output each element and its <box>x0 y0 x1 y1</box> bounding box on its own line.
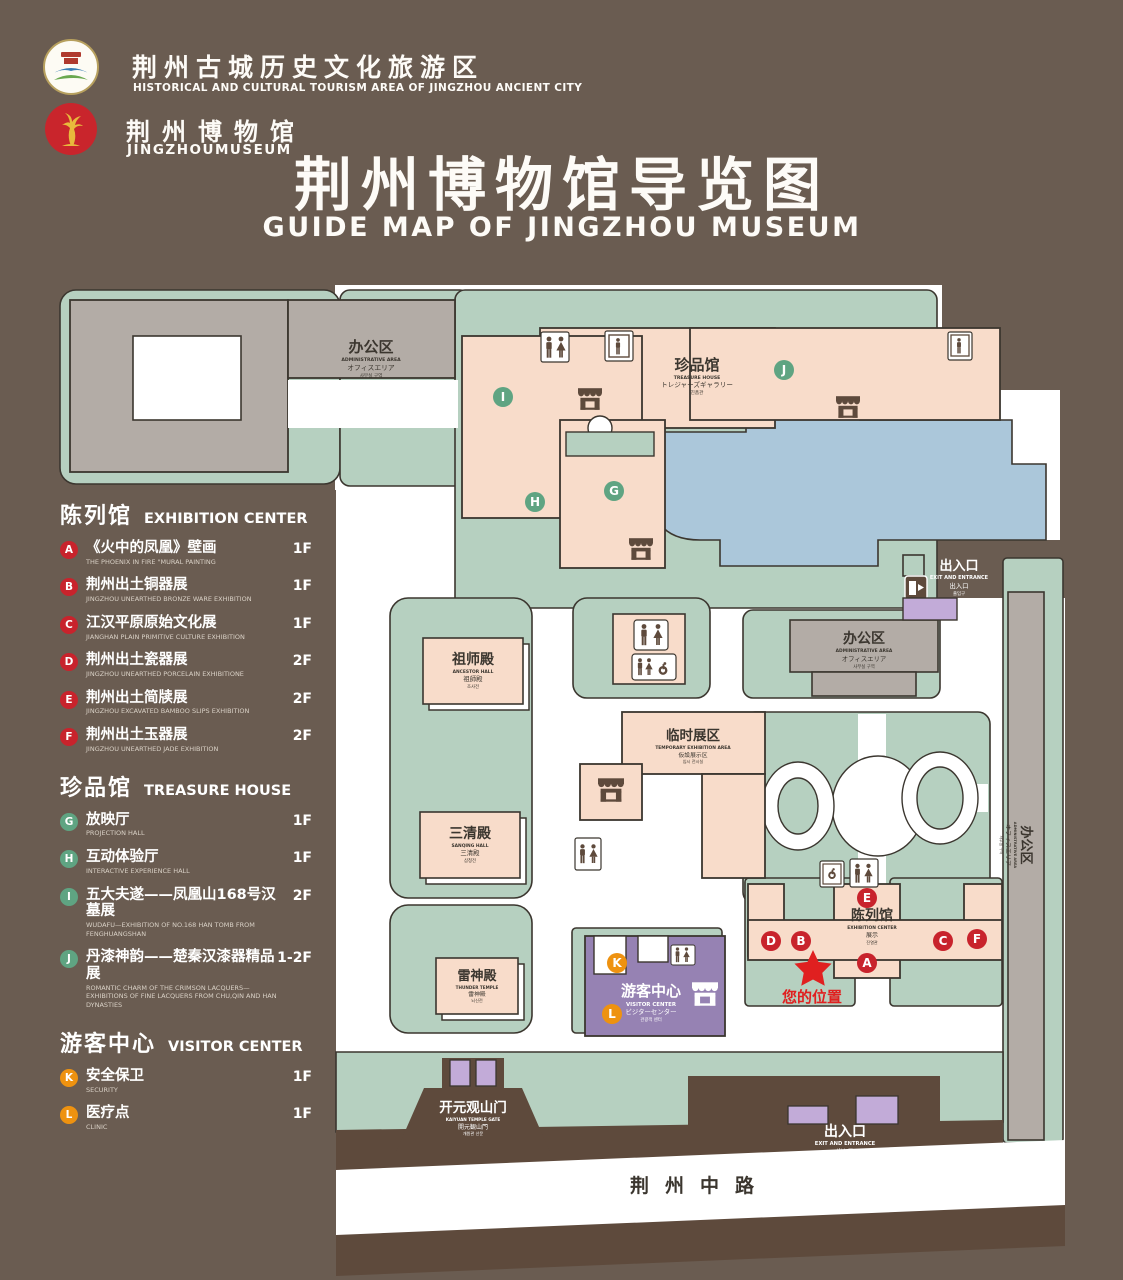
marker-K: K <box>607 953 627 973</box>
sanqing-hall: 三清殿 SANQING HALL 三清殿 삼청전 <box>420 812 526 884</box>
marker-badge: A <box>60 541 78 559</box>
marker-A: A <box>857 953 877 973</box>
section-treasure-house: 珍品馆 TREASURE HOUSE <box>60 770 312 802</box>
svg-text:출입구: 출입구 <box>839 1154 851 1161</box>
svg-text:ビジターセンター: ビジターセンター <box>626 1007 677 1016</box>
item-en: ROMANTIC CHARM OF THE CRIMSON LACQUERS—E… <box>86 984 278 1010</box>
elevator-icon <box>605 331 633 361</box>
svg-text:EXIT AND ENTRANCE: EXIT AND ENTRANCE <box>930 575 989 581</box>
item-zh: 五大夫遂——凤凰山168号汉墓展 <box>86 887 278 920</box>
svg-text:E: E <box>863 891 871 905</box>
svg-text:개원관 산문: 개원관 산문 <box>463 1130 484 1137</box>
svg-text:삼청전: 삼청전 <box>464 857 476 864</box>
svg-text:사무실 구역: 사무실 구역 <box>999 836 1004 855</box>
restroom-icon <box>671 945 695 965</box>
svg-text:トレジャーズギャラリー: トレジャーズギャラリー <box>661 380 733 389</box>
item-zh: 《火中的凤凰》壁画 <box>86 540 217 557</box>
svg-text:KAIYUAN TEMPLE GATE: KAIYUAN TEMPLE GATE <box>446 1117 501 1122</box>
svg-text:临时展区: 临时展区 <box>666 727 720 744</box>
restroom-icon <box>850 859 878 887</box>
item-zh: 荆州出土玉器展 <box>86 727 218 744</box>
marker-badge: I <box>60 888 78 906</box>
svg-text:ADMINISTRATIVE AREA: ADMINISTRATIVE AREA <box>836 648 893 654</box>
svg-text:EXIT AND ENTRANCE: EXIT AND ENTRANCE <box>815 1141 876 1147</box>
marker-H: H <box>525 492 545 512</box>
item-en: JINGZHOU UNEARTHED PORCELAIN EXHIBITIONE <box>86 670 244 679</box>
item-floor: 1F <box>293 578 312 594</box>
svg-text:出入口: 出入口 <box>939 558 978 574</box>
item-zh: 放映厅 <box>86 812 145 829</box>
section-exhibition-center: 陈列馆 EXHIBITION CENTER <box>60 498 312 530</box>
svg-text:A: A <box>862 956 872 970</box>
svg-text:EXHIBITION CENTER: EXHIBITION CENTER <box>847 925 897 931</box>
marker-L: L <box>602 1004 622 1024</box>
tourism-area-name-en: HISTORICAL AND CULTURAL TOURISM AREA OF … <box>133 82 582 94</box>
item-zh: 医疗点 <box>86 1105 130 1122</box>
svg-text:THUNDER TEMPLE: THUNDER TEMPLE <box>456 985 499 990</box>
road-name: 荆州中路 <box>630 1174 770 1197</box>
svg-text:出入口: 出入口 <box>949 581 968 590</box>
svg-text:雷神殿: 雷神殿 <box>457 968 497 984</box>
marker-badge: C <box>60 616 78 634</box>
item-floor: 1F <box>293 850 312 866</box>
guide-map-poster: 办公区 ADMINISTRATIVE AREA オフィスエリア 사무실 구역 珍… <box>0 0 1123 1280</box>
legend-item-K: K 安全保卫 SECURITY 1F <box>60 1068 312 1094</box>
item-floor: 1F <box>293 616 312 632</box>
svg-text:ADMINISTRATIVE AREA: ADMINISTRATIVE AREA <box>1013 822 1017 869</box>
tourism-area-logo <box>42 38 100 100</box>
item-zh: 荆州出土铜器展 <box>86 577 252 594</box>
svg-text:游客中心: 游客中心 <box>621 982 681 1000</box>
restroom-icon <box>541 332 569 362</box>
marker-badge: J <box>60 950 78 968</box>
exit-entrance-icon <box>905 576 927 600</box>
svg-text:진품관: 진품관 <box>691 389 704 396</box>
svg-text:J: J <box>781 363 786 377</box>
item-zh: 江汉平原原始文化展 <box>86 615 245 632</box>
elevator-icon <box>948 332 972 360</box>
museum-logo <box>44 102 98 160</box>
item-floor: 1F <box>293 1069 312 1085</box>
museum-name-en: JINGZHOUMUSEUM <box>127 142 292 158</box>
svg-text:I: I <box>501 390 505 404</box>
svg-text:임시 전시실: 임시 전시실 <box>683 758 704 764</box>
legend-item-A: A 《火中的凤凰》壁画 THE PHOENIX IN FIRE "MURAL P… <box>60 540 312 566</box>
svg-text:출입구: 출입구 <box>953 590 965 597</box>
svg-text:出入口: 出入口 <box>824 1123 866 1140</box>
svg-text:H: H <box>530 495 540 509</box>
svg-text:三清殿: 三清殿 <box>460 848 480 857</box>
office-building-mid: 办公区 ADMINISTRATIVE AREA オフィスエリア 사무실 구역 <box>790 620 938 696</box>
legend-item-B: B 荆州出土铜器展 JINGZHOU UNEARTHED BRONZE WARE… <box>60 577 312 603</box>
item-floor: 2F <box>293 888 312 904</box>
section-title-en: EXHIBITION CENTER <box>144 511 308 527</box>
svg-text:祖師殿: 祖師殿 <box>463 674 483 683</box>
item-floor: 2F <box>293 728 312 744</box>
item-en: CLINIC <box>86 1123 130 1132</box>
page-title: 荆州博物馆导览图 <box>294 138 830 222</box>
svg-text:办公区: 办公区 <box>348 338 393 356</box>
svg-text:F: F <box>973 932 981 946</box>
legend-item-F: F 荆州出土玉器展 JINGZHOU UNEARTHED JADE EXHIBI… <box>60 727 312 753</box>
item-floor: 1F <box>293 1106 312 1122</box>
item-en: JINGZHOU EXCAVATED BAMBOO SLIPS EXHIBITI… <box>86 707 249 716</box>
item-zh: 安全保卫 <box>86 1068 144 1085</box>
svg-text:办公区: 办公区 <box>1018 825 1034 864</box>
legend-item-G: G 放映厅 PROJECTION HALL 1F <box>60 812 312 838</box>
restroom-block-north <box>613 614 685 684</box>
svg-text:G: G <box>609 484 619 498</box>
section-title-en: TREASURE HOUSE <box>144 783 291 799</box>
legend-item-J: J 丹漆神韵——楚秦汉漆器精品展 ROMANTIC CHARM OF THE C… <box>60 949 312 1010</box>
marker-F: F <box>967 929 987 949</box>
section-title-zh: 游客中心 <box>60 1026 156 1058</box>
svg-text:展示: 展示 <box>866 932 878 939</box>
svg-text:开元观山门: 开元观山门 <box>439 1099 507 1116</box>
legend-item-D: D 荆州出土瓷器展 JINGZHOU UNEARTHED PORCELAIN E… <box>60 652 312 678</box>
svg-text:사무실 구역: 사무실 구역 <box>360 372 383 379</box>
item-en: WUDAFU—EXHIBITION OF NO.168 HAN TOMB FRO… <box>86 921 278 939</box>
svg-text:雷神殿: 雷神殿 <box>468 990 486 998</box>
legend-item-L: L 医疗点 CLINIC 1F <box>60 1105 312 1131</box>
marker-E: E <box>857 888 877 908</box>
svg-text:TEMPORARY EXHIBITION AREA: TEMPORARY EXHIBITION AREA <box>655 745 731 751</box>
accessible-elevator-icon <box>820 861 844 887</box>
svg-text:出入口: 出入口 <box>837 1147 854 1155</box>
legend-item-E: E 荆州出土简牍展 JINGZHOU EXCAVATED BAMBOO SLIP… <box>60 690 312 716</box>
item-en: JINGZHOU UNEARTHED JADE EXHIBITION <box>86 745 218 754</box>
svg-text:ADMINISTRATIVE AREA: ADMINISTRATIVE AREA <box>341 357 401 363</box>
item-floor: 1F <box>293 541 312 557</box>
marker-badge: D <box>60 653 78 671</box>
svg-text:L: L <box>608 1007 616 1021</box>
legend-item-H: H 互动体验厅 INTERACTIVE EXPERIENCE HALL 1F <box>60 849 312 875</box>
family-restroom-icon <box>632 654 676 680</box>
svg-text:三清殿: 三清殿 <box>449 825 492 842</box>
item-zh: 互动体验厅 <box>86 849 190 866</box>
item-en: THE PHOENIX IN FIRE "MURAL PAINTING <box>86 558 217 567</box>
legend-item-I: I 五大夫遂——凤凰山168号汉墓展 WUDAFU—EXHIBITION OF … <box>60 887 312 939</box>
svg-text:D: D <box>766 934 776 948</box>
svg-text:관광객 센터: 관광객 센터 <box>640 1016 662 1023</box>
svg-text:陈列馆: 陈列馆 <box>851 907 893 924</box>
marker-badge: E <box>60 691 78 709</box>
marker-D: D <box>761 931 781 951</box>
section-visitor-center: 游客中心 VISITOR CENTER <box>60 1026 312 1058</box>
svg-text:仮設展示区: 仮設展示区 <box>679 751 708 759</box>
svg-text:オフィスエリア: オフィスエリア <box>842 655 887 663</box>
marker-I: I <box>493 387 513 407</box>
restroom-icon <box>575 838 601 870</box>
svg-text:사무실 구역: 사무실 구역 <box>853 663 875 670</box>
item-en: JINGZHOU UNEARTHED BRONZE WARE EXHIBITIO… <box>86 595 252 604</box>
item-zh: 荆州出土瓷器展 <box>86 652 244 669</box>
marker-B: B <box>791 931 811 951</box>
marker-badge: G <box>60 813 78 831</box>
item-en: INTERACTIVE EXPERIENCE HALL <box>86 867 190 876</box>
item-floor: 1F <box>293 813 312 829</box>
item-floor: 1-2F <box>277 950 312 966</box>
marker-G: G <box>604 481 624 501</box>
svg-text:オフィスエリア: オフィスエリア <box>347 364 395 372</box>
svg-text:オフィスエリア: オフィスエリア <box>1004 824 1011 866</box>
marker-badge: K <box>60 1069 78 1087</box>
svg-text:祖师殿: 祖师殿 <box>451 651 495 668</box>
item-en: JIANGHAN PLAIN PRIMITIVE CULTURE EXHIBIT… <box>86 633 245 642</box>
treasure-terrace <box>566 432 654 456</box>
section-title-zh: 陈列馆 <box>60 498 132 530</box>
marker-badge: H <box>60 850 78 868</box>
item-zh: 丹漆神韵——楚秦汉漆器精品展 <box>86 949 278 982</box>
page-title-en: GUIDE MAP OF JINGZHOU MUSEUM <box>263 212 862 243</box>
item-floor: 2F <box>293 691 312 707</box>
svg-text:C: C <box>939 934 948 948</box>
marker-C: C <box>933 931 953 951</box>
marker-badge: B <box>60 578 78 596</box>
legend-panel: 陈列馆 EXHIBITION CENTER A 《火中的凤凰》壁画 THE PH… <box>60 498 312 1280</box>
svg-text:조사전: 조사전 <box>467 683 479 690</box>
svg-text:진열관: 진열관 <box>866 939 878 945</box>
section-title-en: VISITOR CENTER <box>168 1039 303 1055</box>
thunder-temple: 雷神殿 THUNDER TEMPLE 雷神殿 뇌신전 <box>436 958 524 1020</box>
svg-text:您的位置: 您的位置 <box>781 988 842 1006</box>
svg-text:B: B <box>796 934 805 948</box>
section-title-zh: 珍品馆 <box>60 770 132 802</box>
svg-text:办公区: 办公区 <box>843 630 885 647</box>
restroom-icon <box>634 620 668 650</box>
ancestor-hall: 祖师殿 ANCESTOR HALL 祖師殿 조사전 <box>423 638 529 710</box>
marker-badge: L <box>60 1106 78 1124</box>
marker-J: J <box>774 360 794 380</box>
gate-structure <box>903 598 957 620</box>
item-floor: 2F <box>293 653 312 669</box>
svg-text:K: K <box>612 956 622 970</box>
marker-badge: F <box>60 728 78 746</box>
item-en: SECURITY <box>86 1086 144 1095</box>
svg-text:開元観山門: 開元観山門 <box>458 1123 488 1131</box>
svg-text:뇌신전: 뇌신전 <box>471 997 483 1004</box>
item-zh: 荆州出土简牍展 <box>86 690 249 707</box>
tourism-area-name: 荆州古城历史文化旅游区 <box>132 48 484 84</box>
svg-text:珍品馆: 珍品馆 <box>674 356 719 374</box>
legend-item-C: C 江汉平原原始文化展 JIANGHAN PLAIN PRIMITIVE CUL… <box>60 615 312 641</box>
item-en: PROJECTION HALL <box>86 829 145 838</box>
